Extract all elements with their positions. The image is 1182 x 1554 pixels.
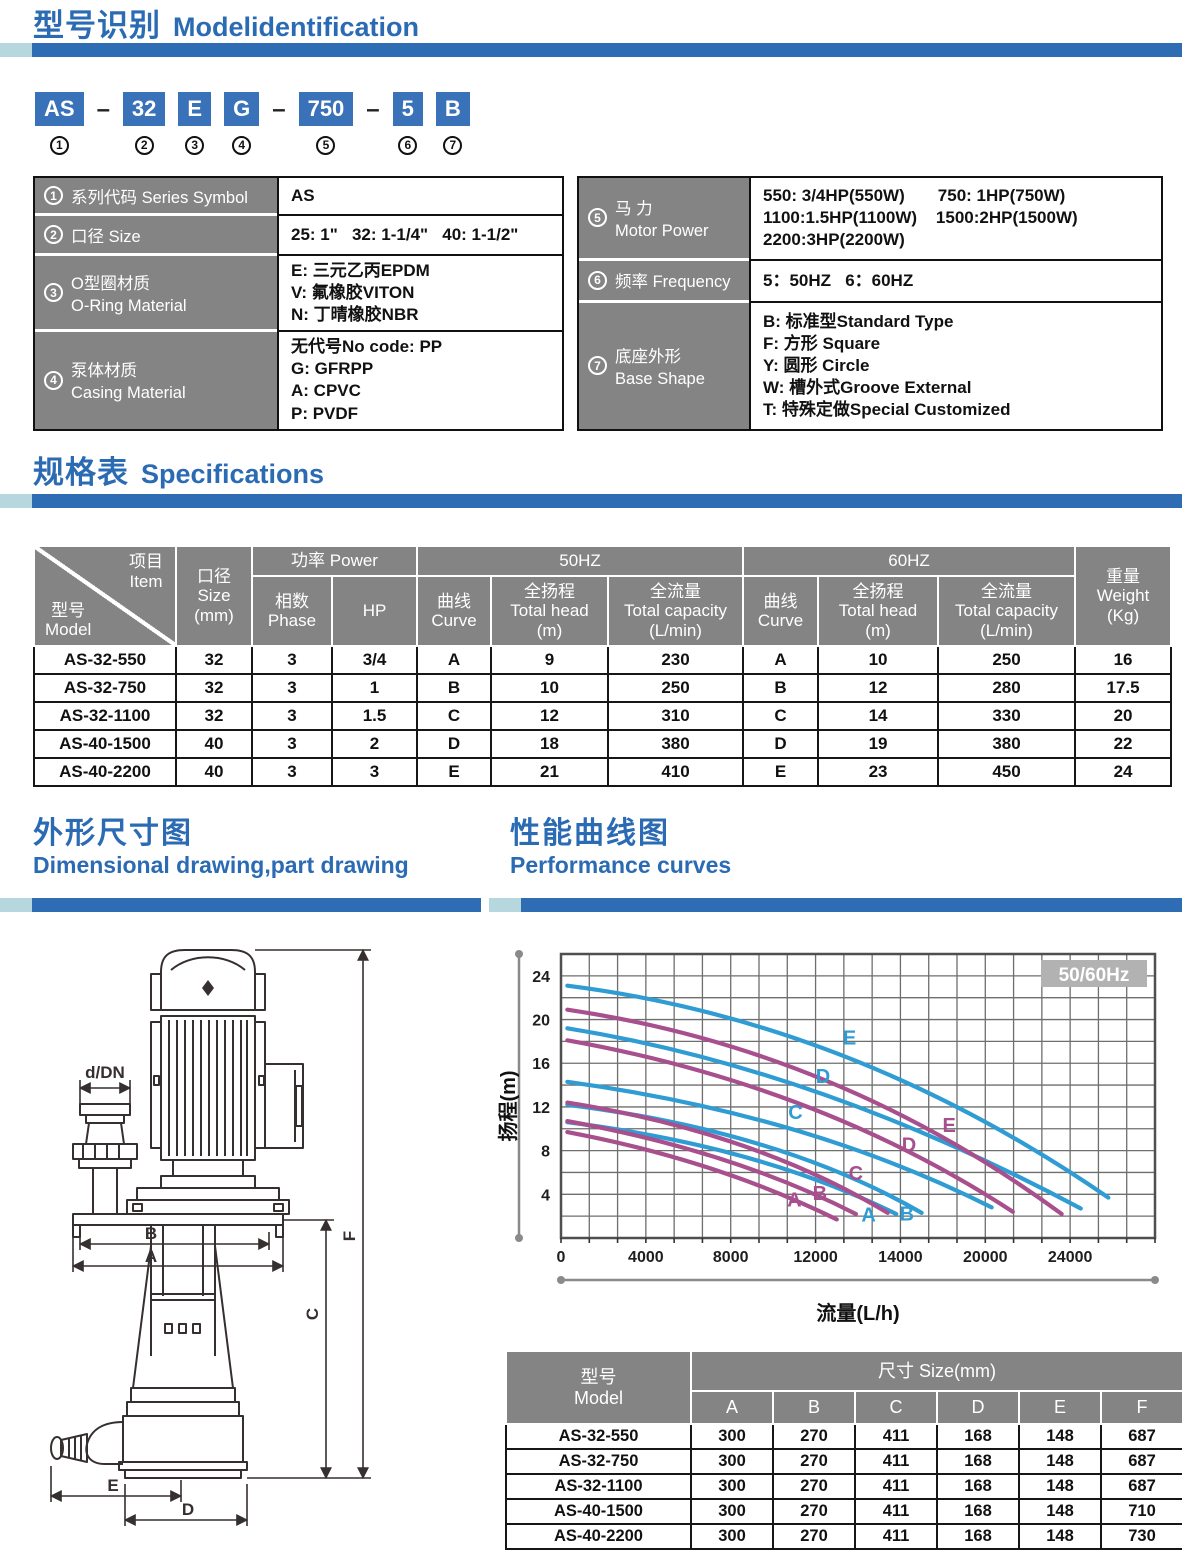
row-value: G: GFRPP [291,358,550,380]
size-col-c: C [855,1391,937,1424]
row-value: Y: 圆形 Circle [763,355,1149,377]
row-label: Casing Material [71,384,186,403]
row-value: AS [291,185,550,207]
row-label: Motor Power [615,222,709,241]
model-id-tables: 1 系列代码 Series Symbol AS 2 口径 Size 25: 1"… [33,176,1163,431]
cell: 380 [608,730,743,758]
row-value: B: 标准型Standard Type [763,311,1149,333]
row-label: 马 力 [615,195,709,219]
cell: 410 [608,758,743,786]
svg-text:C: C [849,1163,863,1185]
circled-number: 7 [588,356,607,375]
row-value: 5：50HZ 6：60HZ [763,270,1149,292]
table-row: AS-40-22004033E21410E2345024 [34,758,1171,786]
header-weight: 重量 Weight (Kg) [1075,546,1171,646]
cell: 230 [608,646,743,674]
header-item-zh: 项目 [129,552,163,572]
bar-fill [32,494,1182,508]
cell: 411 [855,1474,937,1499]
cell: 168 [937,1524,1019,1549]
code-box: 5 [393,92,423,126]
cell: 687 [1101,1449,1182,1474]
header-model-zh: 型号 [45,601,91,621]
model-code: AS 1 – 32 2 E 3 G 4 – 750 5 – 5 6 B 7 [35,92,470,155]
code-box: AS [35,92,84,126]
cell: 411 [855,1424,937,1449]
cell: 687 [1101,1474,1182,1499]
row-label: 底座外形 [615,343,705,367]
header-size: 口径 Size (mm) [176,546,252,646]
cell: 3 [252,646,332,674]
section-divider-bar [0,43,1182,57]
curves-svg: 04000800012000140002000024000 4812162024… [497,938,1182,1336]
cell: 148 [1019,1524,1101,1549]
cell: A [743,646,818,674]
cell: 16 [1075,646,1171,674]
dim-label-flange: d/DN [85,1063,125,1082]
cell: 18 [491,730,608,758]
size-col-a: A [691,1391,773,1424]
cell: 148 [1019,1449,1101,1474]
svg-text:12: 12 [532,1100,550,1117]
section-divider-bar [0,494,1182,508]
cell: E [743,758,818,786]
section-title-zh: 规格表 [33,447,129,492]
svg-text:0: 0 [557,1249,566,1266]
cell: 687 [1101,1424,1182,1449]
cell: 1.5 [332,702,417,730]
code-part: G 4 [224,92,259,155]
table-row: AS-32-550300270411168148687 [506,1424,1182,1449]
row-label: 口径 Size [71,223,141,247]
specifications-table: 项目 Item 型号 Model 口径 Size (mm) 功率 Power 5… [33,545,1172,787]
header-head-50: 全扬程 Total head (m) [491,576,608,646]
circled-number: 7 [443,136,462,155]
svg-text:24: 24 [532,969,550,986]
dimensional-section-title: 外形尺寸图 Dimensional drawing,part drawing [33,816,409,880]
cell: 411 [855,1449,937,1474]
dim-label-f: F [340,1231,359,1241]
cell: 40 [176,758,252,786]
table-row: AS-32-1100300270411168148687 [506,1474,1182,1499]
cell: AS-32-550 [34,646,176,674]
curve-60Hz-E [567,986,1108,1198]
id-table-left: 1 系列代码 Series Symbol AS 2 口径 Size 25: 1"… [33,176,564,431]
svg-text:D: D [816,1066,830,1088]
svg-text:24000: 24000 [1048,1249,1093,1266]
cell: 148 [1019,1499,1101,1524]
header-60hz: 60HZ [743,546,1075,576]
model-section-title: 型号识别 Modelidentification [33,0,419,45]
cell: AS-32-750 [34,674,176,702]
table-row: 4 泵体材质 Casing Material 无代号No code: PP G:… [35,332,562,428]
row-value: 25: 1" 32: 1-1/4" 40: 1-1/2" [291,224,550,246]
bar-fill [32,898,481,912]
cell: AS-32-550 [506,1424,691,1449]
cell: 411 [855,1499,937,1524]
cell: 270 [773,1474,855,1499]
cell: 1 [332,674,417,702]
size-header-model: 型号 Model [506,1351,691,1424]
svg-text:B: B [900,1204,914,1226]
table-row: AS-40-2200300270411168148730 [506,1524,1182,1549]
cell: AS-32-1100 [34,702,176,730]
cell: 22 [1075,730,1171,758]
cell: AS-32-1100 [506,1474,691,1499]
frequency-badge: 50/60Hz [1041,960,1147,987]
spec-table-body: AS-32-5503233/4A9230A1025016AS-32-750323… [34,646,1171,786]
cell: 310 [608,702,743,730]
cell: 300 [691,1499,773,1524]
section-title-en: Dimensional drawing,part drawing [33,852,409,880]
cell: 3 [252,758,332,786]
section-title-zh: 外形尺寸图 [33,816,409,852]
svg-text:14000: 14000 [878,1249,923,1266]
svg-text:16: 16 [532,1056,550,1073]
cell: 270 [773,1524,855,1549]
circled-number: 6 [588,271,607,290]
id-table-right: 5 马 力 Motor Power 550: 3/4HP(550W) 750: … [577,176,1163,431]
cell: 148 [1019,1474,1101,1499]
cell: 168 [937,1499,1019,1524]
cell: 250 [938,646,1075,674]
code-box: E [178,92,211,126]
cell: D [743,730,818,758]
svg-text:B: B [813,1183,827,1205]
cell: 380 [938,730,1075,758]
row-value: N: 丁晴橡胶NBR [291,304,550,326]
section-title-en: Performance curves [510,852,731,880]
cell: 2 [332,730,417,758]
outlet-elbow [51,1422,123,1464]
cell: B [417,674,491,702]
row-value: E: 三元乙丙EPDM [291,260,550,282]
size-table-body: AS-32-550300270411168148687AS-32-7503002… [506,1424,1182,1549]
circled-number: 1 [44,186,63,205]
cell: 730 [1101,1524,1182,1549]
header-head-60: 全扬程 Total head (m) [818,576,938,646]
size-header-span: 尺寸 Size(mm) [691,1351,1182,1391]
circled-number: 2 [135,136,154,155]
cell: A [417,646,491,674]
header-power: 功率 Power [252,546,417,576]
cell: 12 [491,702,608,730]
cell: 12 [818,674,938,702]
code-part: B 7 [436,92,470,155]
svg-text:8: 8 [541,1144,550,1161]
circled-number: 3 [185,136,204,155]
code-box: 750 [299,92,354,126]
svg-text:E: E [943,1115,956,1137]
motor-icon [151,950,303,1160]
badge-text: 50/60Hz [1059,965,1130,986]
cell: 10 [491,674,608,702]
row-value: 550: 3/4HP(550W) 750: 1HP(750W) [763,185,1149,207]
table-row: 1 系列代码 Series Symbol AS [35,178,562,216]
code-dash: – [97,96,110,124]
svg-text:D: D [902,1135,916,1157]
table-row: 3 O型圈材质 O-Ring Material E: 三元乙丙EPDM V: 氟… [35,256,562,332]
code-box: B [436,92,470,126]
header-hp: HP [332,576,417,646]
circled-number: 5 [316,136,335,155]
svg-text:4000: 4000 [628,1249,664,1266]
header-phase: 相数 Phase [252,576,332,646]
dim-label-b: B [145,1224,157,1243]
code-part: 5 6 [393,92,423,155]
section-divider-bar [0,898,481,912]
x-tick-labels: 04000800012000140002000024000 [557,1249,1093,1266]
bar-fill [521,898,1182,912]
dim-label-c: C [303,1308,322,1320]
cell: 32 [176,674,252,702]
cell: 300 [691,1524,773,1549]
cell: AS-40-1500 [506,1499,691,1524]
cell: 14 [818,702,938,730]
row-value: A: CPVC [291,380,550,402]
header-50hz: 50HZ [417,546,743,576]
code-box: 32 [123,92,165,126]
table-row: 6 频率 Frequency 5：50HZ 6：60HZ [579,261,1161,303]
cell: 21 [491,758,608,786]
table-row: 5 马 力 Motor Power 550: 3/4HP(550W) 750: … [579,178,1161,261]
pump-column [119,1225,247,1478]
cell: 270 [773,1424,855,1449]
cell: E [417,758,491,786]
svg-text:12000: 12000 [793,1249,838,1266]
cell: 24 [1075,758,1171,786]
row-label: 频率 Frequency [615,268,731,292]
svg-text:20000: 20000 [963,1249,1008,1266]
cell: AS-40-2200 [34,758,176,786]
cell: 3 [252,702,332,730]
code-part: 750 5 [299,92,354,155]
cell: B [743,674,818,702]
row-value: W: 槽外式Groove External [763,377,1149,399]
cell: 9 [491,646,608,674]
row-label: O型圈材质 [71,270,187,294]
svg-text:20: 20 [532,1013,550,1030]
dim-label-a: A [145,1247,157,1266]
cell: 3 [252,730,332,758]
cell: 19 [818,730,938,758]
code-dash: – [366,96,379,124]
bar-fill [32,43,1182,57]
cell: AS-40-1500 [34,730,176,758]
terminal-box [265,1064,303,1148]
dimensional-drawing: d/DN B A [33,936,483,1541]
section-title-zh: 型号识别 [33,0,161,45]
svg-text:8000: 8000 [713,1249,749,1266]
size-col-e: E [1019,1391,1101,1424]
cell: 450 [938,758,1075,786]
cell: 17.5 [1075,674,1171,702]
cell: 300 [691,1449,773,1474]
bar-accent-square [0,494,32,508]
table-row: AS-40-15004032D18380D1938022 [34,730,1171,758]
section-title-zh: 性能曲线图 [510,816,731,852]
svg-text:A: A [787,1189,801,1211]
row-label: O-Ring Material [71,297,187,316]
cell: 280 [938,674,1075,702]
bar-accent-square [0,898,32,912]
section-title-en: Specifications [141,459,324,490]
table-row: AS-40-1500300270411168148710 [506,1499,1182,1524]
cell: C [743,702,818,730]
header-curve-50: 曲线 Curve [417,576,491,646]
cell: 10 [818,646,938,674]
cell: 270 [773,1449,855,1474]
cell: 330 [938,702,1075,730]
table-row: 2 口径 Size 25: 1" 32: 1-1/4" 40: 1-1/2" [35,216,562,256]
cell: 23 [818,758,938,786]
circled-number: 1 [50,136,69,155]
row-value: F: 方形 Square [763,333,1149,355]
header-model-en: Model [45,620,91,640]
section-divider-bar [489,898,1182,912]
table-row: 7 底座外形 Base Shape B: 标准型Standard Type F:… [579,303,1161,429]
cell: C [417,702,491,730]
cell: 40 [176,730,252,758]
svg-text:C: C [788,1102,802,1124]
header-capacity-50: 全流量 Total capacity (L/min) [608,576,743,646]
table-row: AS-32-5503233/4A9230A1025016 [34,646,1171,674]
row-label: Base Shape [615,370,705,389]
bar-accent-square [0,43,32,57]
pump-datasheet-page: { "model_section": { "title_zh": "型号识别",… [0,0,1182,1554]
row-value: V: 氟橡胶VITON [291,282,550,304]
inlet-flange: d/DN [73,1063,137,1214]
row-value: 2200:3HP(2200W) [763,229,1149,251]
svg-text:4: 4 [541,1187,550,1204]
cell: 300 [691,1474,773,1499]
section-title-en: Modelidentification [173,12,419,43]
table-row: AS-32-7503231B10250B1228017.5 [34,674,1171,702]
row-label: 系列代码 Series Symbol [71,184,248,208]
header-curve-60: 曲线 Curve [743,576,818,646]
pump-curves [567,986,1108,1220]
circled-number: 5 [588,208,607,227]
cell: 3 [252,674,332,702]
cell: 168 [937,1474,1019,1499]
cell: 32 [176,702,252,730]
header-item-en: Item [129,572,163,592]
cell: 20 [1075,702,1171,730]
svg-text:A: A [861,1205,875,1227]
cell: 710 [1101,1499,1182,1524]
cell: AS-40-2200 [506,1524,691,1549]
pump-mount [73,1160,289,1237]
cell: 3/4 [332,646,417,674]
pump-drawing-svg: d/DN B A [33,936,483,1536]
cell: 168 [937,1424,1019,1449]
x-axis-label: 流量(L/h) [816,1301,899,1325]
row-value: P: PVDF [291,403,550,425]
cell: 250 [608,674,743,702]
corner-header-cell: 项目 Item 型号 Model [34,546,176,646]
dimension-lines: B A C F E D [51,950,371,1526]
cell: D [417,730,491,758]
y-axis-label: 扬程(m) [497,1070,520,1141]
circled-number: 4 [232,136,251,155]
performance-section-title: 性能曲线图 Performance curves [510,816,731,880]
row-label: 泵体材质 [71,357,186,381]
code-part: 32 2 [123,92,165,155]
circled-number: 3 [44,283,63,302]
circled-number: 2 [44,225,63,244]
code-part: AS 1 [35,92,84,155]
size-col-d: D [937,1391,1019,1424]
performance-curves-chart: 04000800012000140002000024000 4812162024… [497,938,1182,1341]
cell: 168 [937,1449,1019,1474]
circled-number: 6 [398,136,417,155]
svg-text:E: E [843,1028,856,1050]
code-part: E 3 [178,92,211,155]
circled-number: 4 [44,371,63,390]
code-dash: – [272,96,285,124]
size-table: 型号 Model 尺寸 Size(mm) A B C D E F AS-32-5… [505,1350,1182,1550]
dim-label-e: E [107,1476,118,1495]
cell: 411 [855,1524,937,1549]
cell: AS-32-750 [506,1449,691,1474]
size-col-f: F [1101,1391,1182,1424]
row-value: 无代号No code: PP [291,336,550,358]
table-row: AS-32-11003231.5C12310C1433020 [34,702,1171,730]
row-value: T: 特殊定做Special Customized [763,399,1149,421]
row-value: 1100:1.5HP(1100W) 1500:2HP(1500W) [763,207,1149,229]
cell: 3 [332,758,417,786]
code-box: G [224,92,259,126]
cell: 270 [773,1499,855,1524]
table-row: AS-32-750300270411168148687 [506,1449,1182,1474]
cell: 32 [176,646,252,674]
size-col-b: B [773,1391,855,1424]
bar-accent-square [489,898,521,912]
header-capacity-60: 全流量 Total capacity (L/min) [938,576,1075,646]
y-tick-labels: 4812162024 [532,969,550,1204]
cell: 148 [1019,1424,1101,1449]
dim-label-d: D [182,1500,194,1519]
specs-section-title: 规格表 Specifications [33,447,324,492]
cell: 300 [691,1424,773,1449]
